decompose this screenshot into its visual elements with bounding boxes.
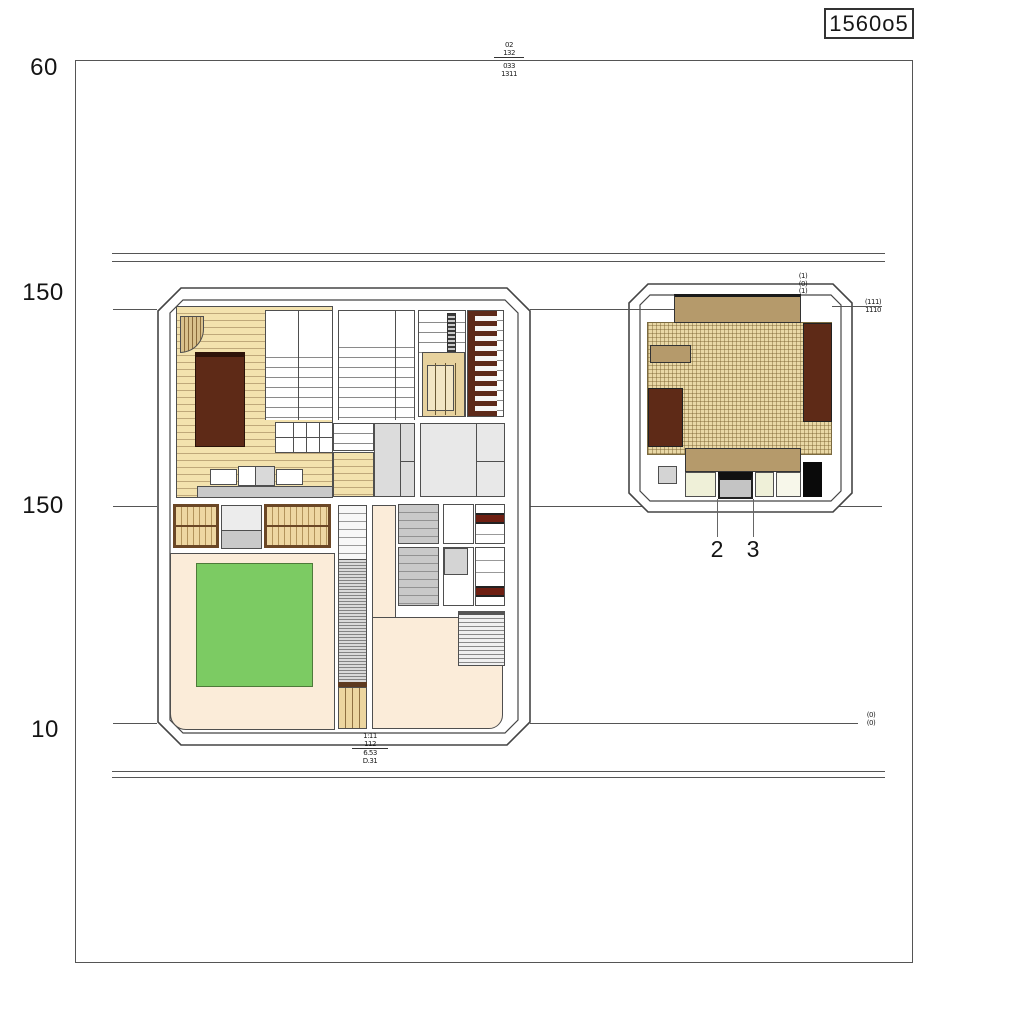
divider [395,311,396,420]
title-box-label: 1560o5 [829,11,908,37]
top-tan-cabinet [674,294,801,323]
bed-headrest [238,466,275,486]
right-brown-chest [803,323,832,422]
green-mat [196,563,313,687]
red-beam [476,586,504,597]
double-line-top-2 [112,261,885,262]
bed-pillow-left [210,469,237,485]
shelf-grid-room-c [338,310,415,420]
divider [293,423,294,453]
shelf-line [476,534,504,535]
divider [319,423,320,453]
double-line-top-1 [112,253,885,254]
ladder-rungs [475,311,497,416]
annotation-top-center-upper: 02 132 [494,42,524,58]
stair-treads [458,611,505,666]
callout-label-3: 3 [743,536,763,563]
title-box: 1560o5 [824,8,914,39]
annotation-line: D.31 [352,758,388,766]
dim-label-150b: 150 [22,492,64,520]
shelf-lines [419,313,465,353]
shelf-lines [266,348,332,420]
dim-line-10-right [530,723,858,724]
center-strip-shelf [338,505,367,560]
divider [455,363,456,415]
divider [435,363,436,415]
red-beam [476,513,504,524]
beam-cell-1 [475,504,505,544]
architectural-drawing-sheet: 1560o5 60 150 150 10 [0,0,1024,1024]
dim-line-150b-left [113,506,157,507]
cream-column [372,505,396,620]
shelf-lines [339,338,414,420]
shelf-line [476,560,504,561]
dim-line-10-left [113,723,157,724]
bottom-tan-cabinet [685,448,801,472]
beam-cell-2 [475,547,505,606]
dim-label-10: 10 [30,716,60,744]
cream-cell-2 [755,472,774,497]
double-line-bottom-1 [112,771,885,772]
annotation-right-low: (0) (0) [856,712,886,727]
dim-line-150a-mid [530,309,675,310]
dim-line-150a-left [113,309,157,310]
mat-center-bottom [221,530,262,549]
mat-midline [176,525,216,527]
dark-hatch-strip [447,313,456,353]
gray-room [420,423,505,497]
double-line-bottom-2 [112,777,885,778]
small-gray-box [658,466,677,484]
leader-line-3 [753,499,754,537]
bed-pillow-right [276,469,303,485]
gray-appliance [718,472,753,499]
annotation-line: 1110 [856,307,890,315]
center-strip-stair [338,560,367,686]
left-tan-table [650,345,691,363]
gray-strip [374,423,415,497]
tan-cabinet [422,352,465,417]
shelf-divider [298,311,299,420]
shelf-grid-room-a [265,310,333,420]
gray-stair-block-1 [398,504,439,544]
gray-box [444,548,468,575]
ladder-rail [468,311,475,416]
white-cell-2 [443,547,474,606]
left-brown-chest [648,388,683,447]
tatami-mat-left [173,504,219,548]
annotation-line: 1311 [494,71,524,79]
cabinet-inner [427,365,454,411]
shelf-line [476,572,504,573]
tatami-mat-right [264,504,331,548]
annotation-below-plan-lower: 6.53 D.31 [352,750,388,765]
center-strip-slats [338,687,367,729]
divider [400,424,401,496]
dim-label-60: 60 [26,54,62,82]
annotation-line: 112 [352,741,388,750]
leader-line-2 [717,499,718,537]
annotation-line: (0) [856,720,886,728]
annotation-top-center-lower: 033 1311 [494,63,524,78]
mat-center-top [221,505,262,531]
bed-platform [197,486,333,498]
mid-wood [333,452,374,497]
annotation-line: (1) [790,288,816,296]
dark-rug [195,352,245,447]
divider [476,424,477,496]
annotation-right-mid: (111) 1110 [856,299,890,314]
ladder-side [497,311,503,416]
callout-label-2: 2 [707,536,727,563]
black-unit [803,462,822,497]
annotation-line: 132 [494,50,524,59]
white-cell-1 [443,504,474,544]
annotation-below-plan-upper: 1:11 112 [352,733,388,749]
headrest-half [239,467,256,485]
dim-label-150a: 150 [22,279,64,307]
cream-cell-3 [776,472,801,497]
divider-h [400,461,414,462]
divider-h [276,437,332,438]
cream-cell-1 [685,472,716,497]
divider-h [476,461,504,462]
shelf-grid-room-b [275,422,333,453]
mat-midline [267,525,328,527]
divider [306,423,307,453]
annotation-small-plan-top: (1) (0) (1) [790,273,816,296]
divider [445,363,446,415]
mid-shelf [333,423,374,451]
gray-stair-block-2 [398,547,439,606]
stair-ladder [467,310,504,417]
